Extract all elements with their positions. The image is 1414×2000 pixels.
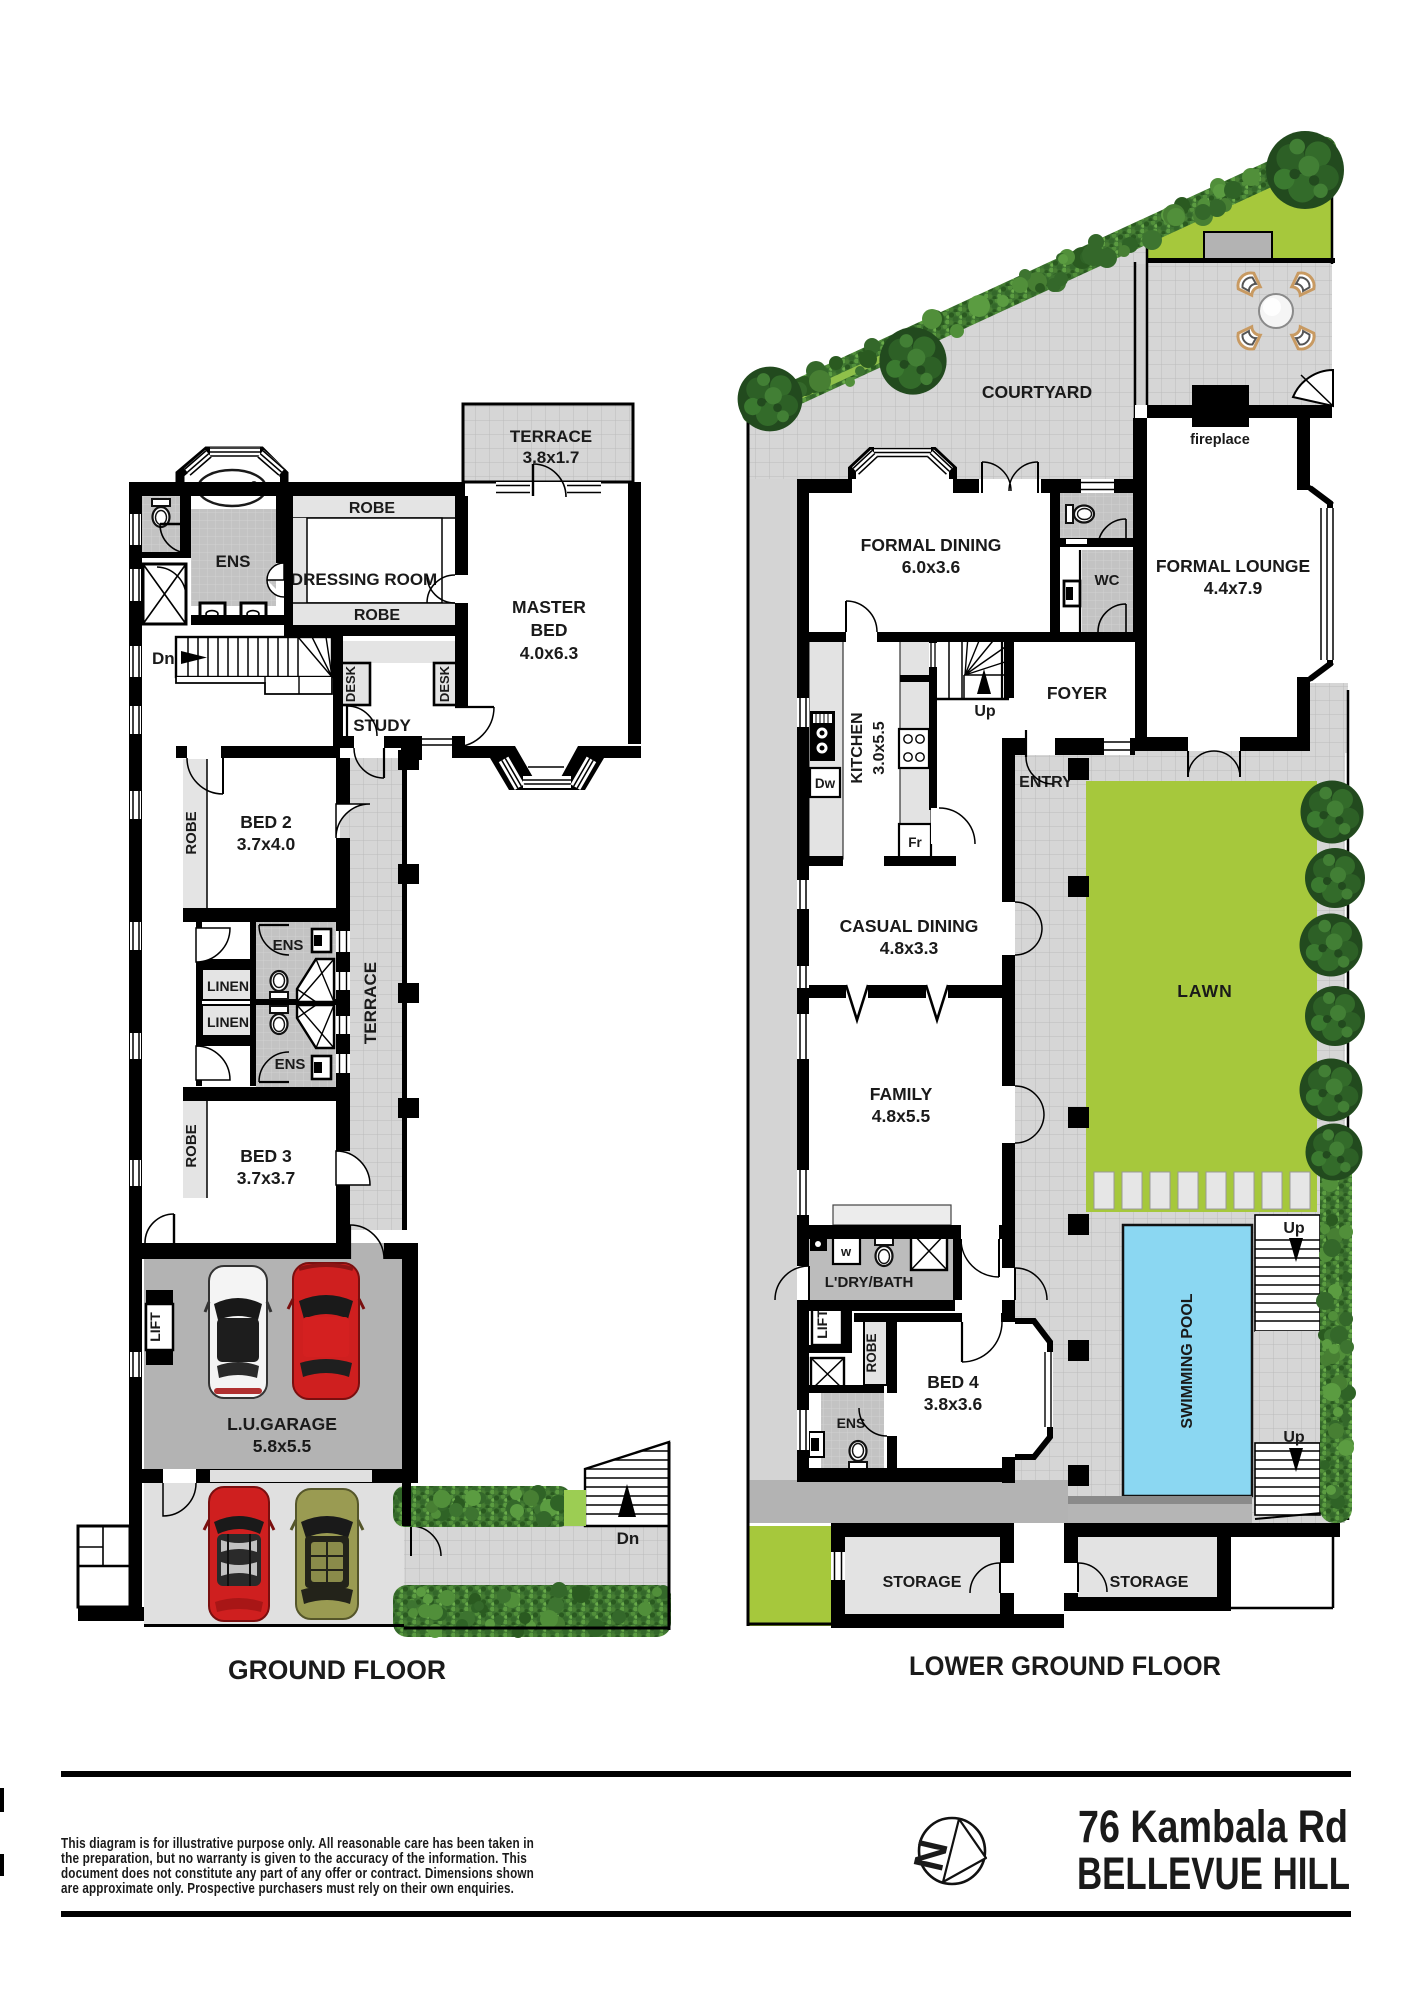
svg-text:ROBE: ROBE xyxy=(349,500,396,517)
svg-text:Up: Up xyxy=(1283,1220,1305,1237)
svg-text:ENS: ENS xyxy=(273,937,304,954)
svg-text:3.0x5.5: 3.0x5.5 xyxy=(871,721,888,774)
svg-text:5.8x5.5: 5.8x5.5 xyxy=(253,1436,312,1456)
svg-text:4.0x6.3: 4.0x6.3 xyxy=(520,643,579,663)
svg-text:STORAGE: STORAGE xyxy=(1110,1574,1189,1591)
svg-text:DESK: DESK xyxy=(343,665,358,702)
svg-text:STORAGE: STORAGE xyxy=(883,1574,962,1591)
svg-text:COURTYARD: COURTYARD xyxy=(982,382,1092,402)
svg-text:Dn: Dn xyxy=(152,649,175,668)
svg-text:3.8x3.6: 3.8x3.6 xyxy=(924,1394,983,1414)
svg-text:4.4x7.9: 4.4x7.9 xyxy=(1204,578,1263,598)
svg-text:6.0x3.6: 6.0x3.6 xyxy=(902,557,961,577)
svg-text:BELLEVUE HILL: BELLEVUE HILL xyxy=(1077,1848,1350,1899)
svg-text:BED: BED xyxy=(531,620,568,640)
svg-text:LOWER GROUND FLOOR: LOWER GROUND FLOOR xyxy=(909,1651,1221,1681)
svg-text:3.7x4.0: 3.7x4.0 xyxy=(237,834,296,854)
svg-text:Up: Up xyxy=(974,703,996,720)
svg-text:ENS: ENS xyxy=(216,552,251,571)
svg-text:LINEN: LINEN xyxy=(207,978,249,994)
svg-text:4.8x3.3: 4.8x3.3 xyxy=(880,938,939,958)
svg-text:STUDY: STUDY xyxy=(353,716,411,735)
svg-text:BED 4: BED 4 xyxy=(927,1372,979,1392)
svg-text:fireplace: fireplace xyxy=(1190,432,1250,448)
svg-text:ROBE: ROBE xyxy=(354,607,401,624)
svg-text:LIFT: LIFT xyxy=(147,1312,163,1342)
svg-text:Dn: Dn xyxy=(617,1529,640,1548)
svg-text:ROBE: ROBE xyxy=(183,811,200,854)
svg-text:FORMAL LOUNGE: FORMAL LOUNGE xyxy=(1156,556,1310,576)
svg-text:the preparation, but no warran: the preparation, but no warranty is give… xyxy=(61,1851,527,1867)
svg-text:L.U.GARAGE: L.U.GARAGE xyxy=(227,1414,337,1434)
svg-text:Dw: Dw xyxy=(815,776,836,791)
svg-text:4.8x5.5: 4.8x5.5 xyxy=(872,1106,931,1126)
svg-text:document does not constitute a: document does not constitute any part of… xyxy=(61,1866,534,1882)
svg-text:BED 2: BED 2 xyxy=(240,812,292,832)
svg-text:WC: WC xyxy=(1095,572,1120,589)
svg-text:MASTER: MASTER xyxy=(512,597,586,617)
svg-text:ROBE: ROBE xyxy=(183,1124,200,1167)
svg-text:are approximate only. Prospect: are approximate only. Prospective purcha… xyxy=(61,1881,514,1897)
svg-text:L'DRY/BATH: L'DRY/BATH xyxy=(825,1274,914,1291)
svg-text:Up: Up xyxy=(1283,1429,1305,1446)
svg-text:DESK: DESK xyxy=(437,665,452,702)
svg-text:LINEN: LINEN xyxy=(207,1014,249,1030)
svg-text:FAMILY: FAMILY xyxy=(870,1084,933,1104)
svg-text:3.8x1.7: 3.8x1.7 xyxy=(523,448,580,467)
svg-text:3.7x3.7: 3.7x3.7 xyxy=(237,1168,295,1188)
svg-text:SWIMMING POOL: SWIMMING POOL xyxy=(1179,1293,1196,1428)
svg-text:LAWN: LAWN xyxy=(1177,981,1233,1001)
svg-text:KITCHEN: KITCHEN xyxy=(849,712,866,783)
svg-text:DRESSING ROOM: DRESSING ROOM xyxy=(291,570,437,589)
svg-text:LIFT: LIFT xyxy=(814,1309,830,1339)
svg-text:CASUAL DINING: CASUAL DINING xyxy=(840,916,979,936)
svg-text:FORMAL DINING: FORMAL DINING xyxy=(861,535,1002,555)
svg-text:76 Kambala Rd: 76 Kambala Rd xyxy=(1078,1801,1348,1852)
svg-text:This diagram is for illustrati: This diagram is for illustrative purpose… xyxy=(61,1836,534,1852)
svg-text:w: w xyxy=(840,1244,852,1259)
svg-text:TERRACE: TERRACE xyxy=(510,427,592,446)
svg-text:FOYER: FOYER xyxy=(1047,683,1108,703)
svg-text:ROBE: ROBE xyxy=(864,1333,879,1372)
svg-text:GROUND FLOOR: GROUND FLOOR xyxy=(228,1655,446,1685)
svg-text:BED 3: BED 3 xyxy=(240,1146,292,1166)
svg-text:Fr: Fr xyxy=(908,835,922,850)
svg-text:ENS: ENS xyxy=(275,1056,306,1073)
svg-text:TERRACE: TERRACE xyxy=(361,962,380,1044)
